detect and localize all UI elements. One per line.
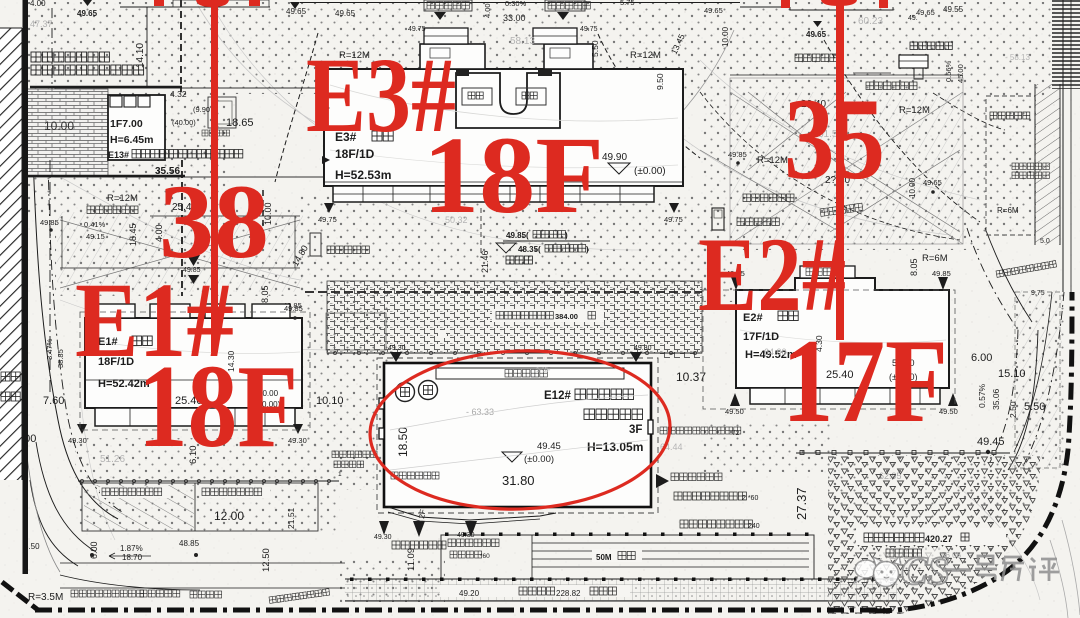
svg-text:49.85: 49.85 xyxy=(40,218,59,227)
svg-text:9.75: 9.75 xyxy=(1031,290,1045,297)
svg-text:60.23: 60.23 xyxy=(858,16,883,27)
svg-text:18.50: 18.50 xyxy=(396,427,410,457)
svg-text:72: 72 xyxy=(732,430,740,437)
svg-text:49.65: 49.65 xyxy=(286,7,307,16)
svg-text:49.50: 49.50 xyxy=(725,407,744,416)
svg-text:21.51: 21.51 xyxy=(286,507,296,529)
svg-text:49.65: 49.65 xyxy=(923,178,942,187)
svg-text:49.75: 49.75 xyxy=(318,215,337,224)
svg-text:0.56%: 0.56% xyxy=(944,60,953,82)
svg-text:33.00: 33.00 xyxy=(503,13,526,23)
svg-text:45.00: 45.00 xyxy=(956,64,965,83)
svg-text:49.65: 49.65 xyxy=(77,9,98,18)
svg-text:18F: 18F xyxy=(423,114,604,236)
svg-text:R=12M: R=12M xyxy=(899,105,930,116)
svg-text:12.00: 12.00 xyxy=(214,509,244,523)
svg-text:3F: 3F xyxy=(629,424,642,436)
svg-text:51.26: 51.26 xyxy=(100,454,125,465)
svg-text:49.30: 49.30 xyxy=(388,345,406,352)
svg-text:1.87%: 1.87% xyxy=(120,544,143,553)
svg-text:6.00: 6.00 xyxy=(971,352,992,364)
svg-text:35: 35 xyxy=(784,75,885,204)
svg-text:15.10: 15.10 xyxy=(998,368,1026,380)
svg-text:14.10: 14.10 xyxy=(135,43,146,68)
svg-text:31.80: 31.80 xyxy=(502,473,535,488)
svg-text:5.75: 5.75 xyxy=(620,0,635,7)
svg-text:10.00: 10.00 xyxy=(44,119,74,133)
svg-text:10.10: 10.10 xyxy=(316,395,344,407)
svg-text:2F: 2F xyxy=(417,508,428,519)
svg-text:E12#: E12# xyxy=(544,390,571,402)
svg-text:49.45: 49.45 xyxy=(977,436,1005,448)
svg-text:R=12M: R=12M xyxy=(630,50,661,61)
svg-text:2 *60: 2 *60 xyxy=(742,495,758,502)
svg-text:49.65: 49.65 xyxy=(335,9,356,18)
svg-text:CS: CS xyxy=(901,548,950,593)
svg-text:- 58.13: - 58.13 xyxy=(1005,53,1030,62)
svg-text:12.50: 12.50 xyxy=(261,548,272,572)
svg-text:(±0.00): (±0.00) xyxy=(634,166,666,177)
svg-text:18.70: 18.70 xyxy=(122,553,143,562)
svg-text:0.41%: 0.41% xyxy=(84,220,106,229)
svg-text:6.00: 6.00 xyxy=(89,541,99,559)
svg-text:49.75: 49.75 xyxy=(580,26,598,33)
svg-text:48.85: 48.85 xyxy=(179,539,200,548)
svg-text:18F: 18F xyxy=(138,340,298,472)
svg-text:18.65: 18.65 xyxy=(226,117,254,129)
svg-text:1-3F: 1-3F xyxy=(536,367,550,374)
svg-text:49.85: 49.85 xyxy=(284,304,303,313)
svg-text:58.13: 58.13 xyxy=(510,36,535,47)
svg-text:50M: 50M xyxy=(596,553,612,562)
svg-text:35.06: 35.06 xyxy=(991,388,1001,410)
svg-text:10.00: 10.00 xyxy=(721,26,730,47)
svg-text:4.00: 4.00 xyxy=(30,0,46,8)
svg-text:): ) xyxy=(586,245,589,254)
svg-text:420.27: 420.27 xyxy=(925,534,953,544)
svg-text:(9.90: (9.90 xyxy=(193,105,210,114)
svg-text:R=6M: R=6M xyxy=(997,206,1019,215)
svg-text:49.30: 49.30 xyxy=(68,436,87,445)
svg-text:5.50: 5.50 xyxy=(1024,401,1045,413)
svg-text:8.05: 8.05 xyxy=(260,285,270,303)
svg-text:49.75: 49.75 xyxy=(408,26,426,33)
svg-text:R=3.5M: R=3.5M xyxy=(28,592,63,603)
svg-text:4.00: 4.00 xyxy=(483,3,492,18)
svg-text:*60: *60 xyxy=(480,553,490,560)
svg-text:4.32: 4.32 xyxy=(170,89,187,99)
svg-text:10.00: 10.00 xyxy=(908,177,917,198)
svg-text:49.55: 49.55 xyxy=(943,5,964,14)
svg-text:1F7.00: 1F7.00 xyxy=(110,118,143,130)
svg-text:27.37: 27.37 xyxy=(794,487,809,520)
svg-text:1: 1 xyxy=(338,471,342,478)
svg-text:47.37: 47.37 xyxy=(30,19,53,29)
svg-text:R=12M: R=12M xyxy=(107,193,138,204)
svg-text:10.37: 10.37 xyxy=(676,370,706,384)
svg-text:5.50: 5.50 xyxy=(590,40,600,57)
svg-text:21.46: 21.46 xyxy=(480,250,490,273)
svg-text:(40.00): (40.00) xyxy=(172,118,196,127)
svg-text:H=6.45m: H=6.45m xyxy=(110,134,154,146)
svg-text:49.15: 49.15 xyxy=(86,232,105,241)
svg-text:9.50: 9.50 xyxy=(655,73,665,90)
svg-text:49.65: 49.65 xyxy=(806,30,827,39)
svg-text:48.35(: 48.35( xyxy=(518,245,541,254)
svg-text:228.82: 228.82 xyxy=(556,589,581,598)
svg-text:7.60: 7.60 xyxy=(43,395,64,407)
svg-text:49.85: 49.85 xyxy=(932,269,951,278)
svg-text:38.85: 38.85 xyxy=(56,349,65,368)
svg-text:H=52.53m: H=52.53m xyxy=(335,168,391,182)
svg-text:H=13.05m: H=13.05m xyxy=(587,440,643,454)
svg-text:3.47%: 3.47% xyxy=(45,338,54,360)
svg-text:0.57%: 0.57% xyxy=(977,383,987,408)
svg-text:49.75: 49.75 xyxy=(664,215,683,224)
svg-text:E13#: E13# xyxy=(108,150,129,160)
svg-text:49.85: 49.85 xyxy=(728,150,747,159)
svg-text:17F: 17F xyxy=(782,314,948,447)
svg-text:8.05: 8.05 xyxy=(909,258,919,276)
svg-text:11.09: 11.09 xyxy=(406,548,417,571)
svg-text:R=6M: R=6M xyxy=(922,253,948,264)
svg-text:240: 240 xyxy=(748,523,760,530)
svg-text:49.20: 49.20 xyxy=(459,589,480,598)
svg-text:49.90: 49.90 xyxy=(602,152,627,163)
svg-text:49.30: 49.30 xyxy=(374,534,392,541)
svg-text:(±0.00): (±0.00) xyxy=(524,454,554,465)
svg-text:0.30%: 0.30% xyxy=(505,0,527,8)
svg-text:49.65: 49.65 xyxy=(704,6,723,15)
svg-text:2.50: 2.50 xyxy=(1008,401,1018,418)
svg-text:49.30: 49.30 xyxy=(634,345,652,352)
svg-text:18.45: 18.45 xyxy=(128,223,138,246)
svg-text:384.00: 384.00 xyxy=(555,312,578,321)
svg-text:49.65: 49.65 xyxy=(916,8,935,17)
